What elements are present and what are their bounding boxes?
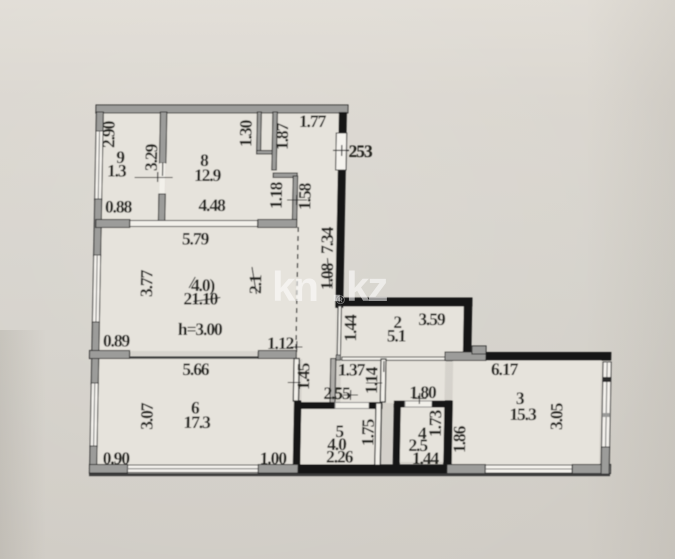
svg-text:1.14: 1.14 bbox=[361, 366, 382, 394]
svg-text:4.48: 4.48 bbox=[198, 195, 226, 215]
svg-text:15.3: 15.3 bbox=[509, 404, 537, 424]
svg-text:17.3: 17.3 bbox=[183, 412, 211, 432]
svg-text:5.66: 5.66 bbox=[182, 359, 210, 379]
svg-text:1.75: 1.75 bbox=[357, 418, 378, 446]
svg-text:1.3: 1.3 bbox=[107, 161, 127, 181]
svg-text:2.90: 2.90 bbox=[98, 120, 119, 148]
svg-text:1.87: 1.87 bbox=[272, 122, 293, 150]
svg-text:7.34: 7.34 bbox=[317, 226, 338, 254]
svg-text:3.07: 3.07 bbox=[136, 402, 157, 430]
svg-text:12.9: 12.9 bbox=[194, 165, 222, 185]
svg-text:3.29: 3.29 bbox=[141, 143, 162, 171]
svg-text:6.17: 6.17 bbox=[491, 359, 519, 379]
svg-text:5.79: 5.79 bbox=[182, 229, 210, 249]
svg-text:0.89: 0.89 bbox=[103, 331, 131, 351]
svg-text:1.44: 1.44 bbox=[412, 448, 440, 468]
svg-text:2.26: 2.26 bbox=[326, 447, 354, 467]
svg-text:1.45: 1.45 bbox=[293, 362, 314, 390]
svg-text:h=3.00: h=3.00 bbox=[178, 319, 223, 339]
svg-text:3.59: 3.59 bbox=[418, 309, 446, 329]
svg-text:253: 253 bbox=[348, 141, 373, 161]
svg-text:3.05: 3.05 bbox=[546, 402, 567, 430]
svg-text:3.77: 3.77 bbox=[136, 269, 157, 297]
svg-text:0.90: 0.90 bbox=[103, 448, 131, 468]
svg-text:kz: kz bbox=[346, 263, 387, 310]
svg-text:2.55: 2.55 bbox=[323, 383, 351, 403]
svg-text:1.30: 1.30 bbox=[235, 119, 256, 147]
svg-text:1.44: 1.44 bbox=[340, 314, 361, 342]
svg-text:1.00: 1.00 bbox=[260, 448, 288, 468]
svg-text:1.12: 1.12 bbox=[267, 333, 294, 353]
svg-text:1.73: 1.73 bbox=[425, 409, 446, 437]
svg-text:1.77: 1.77 bbox=[299, 111, 327, 131]
svg-text:5.1: 5.1 bbox=[387, 326, 406, 346]
svg-text:kn: kn bbox=[272, 263, 317, 310]
svg-text:1.18: 1.18 bbox=[266, 181, 287, 209]
svg-text:®: ® bbox=[336, 293, 345, 307]
svg-text:1.86: 1.86 bbox=[449, 425, 470, 453]
svg-text:0.88: 0.88 bbox=[105, 197, 133, 217]
